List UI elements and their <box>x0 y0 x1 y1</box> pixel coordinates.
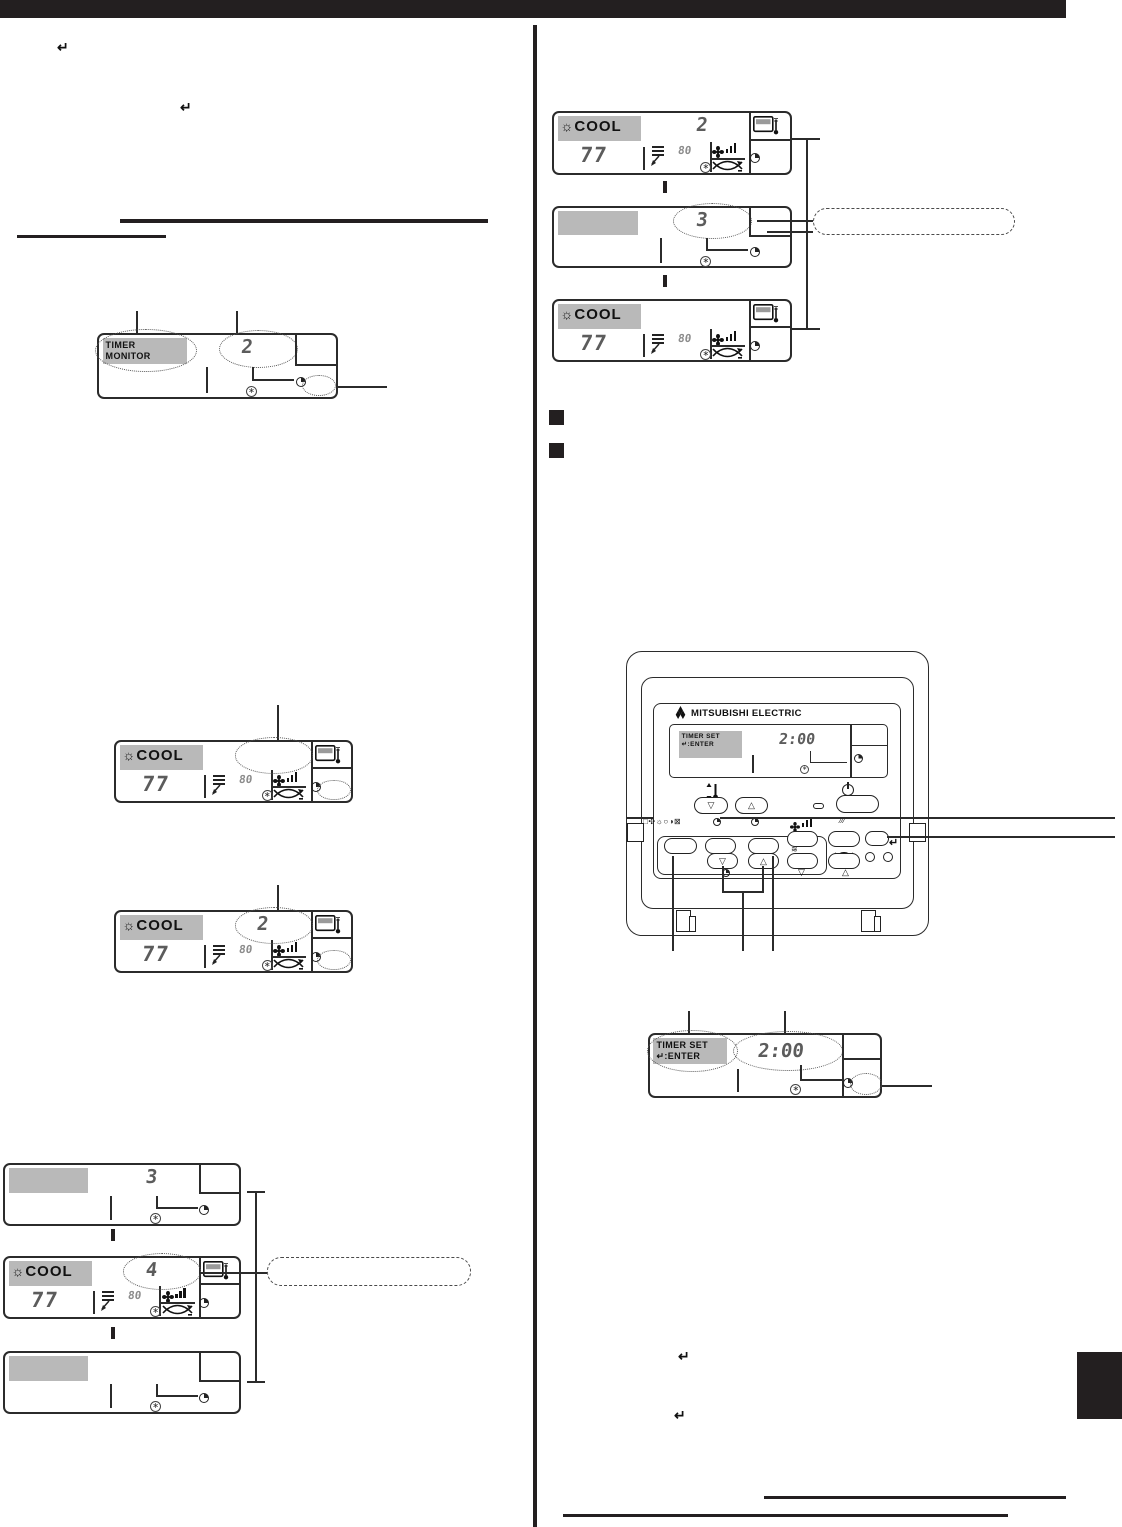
lcd-segment-line <box>156 1395 198 1397</box>
callout-line <box>887 836 1115 838</box>
lcd-segment-line <box>800 1079 843 1081</box>
lcd-segment-line <box>706 249 748 251</box>
mode-line1: TIMER SET <box>682 733 742 741</box>
lcd-timer-set: TIMER SET ↵:ENTER 2:00 ∗ <box>648 1033 882 1098</box>
bottom-clip-tab <box>689 916 696 932</box>
check-button <box>865 852 875 862</box>
swing-icon <box>161 1303 194 1321</box>
lcd-segment-line <box>199 1353 201 1381</box>
enter-key-icon: ↵ <box>674 1407 686 1424</box>
temperature-value: 77 <box>140 772 170 796</box>
page-header-bar <box>0 0 1066 18</box>
down-triangle-label: ▽ <box>719 856 726 866</box>
callout-line <box>277 705 279 740</box>
lcd-segment-line <box>643 147 645 170</box>
temperature-value: 77 <box>140 942 170 966</box>
timer-value: 3 <box>111 1166 191 1188</box>
highlight-ellipse <box>95 329 197 372</box>
callout-line <box>338 386 387 388</box>
bracket-line <box>255 1192 257 1383</box>
swing-icon <box>272 787 305 805</box>
manual-page: ↵ ↵ TIMER MONITOR 2 ∗ ☼COOL 77 80 ∗ <box>0 0 1122 1527</box>
callout-line <box>742 891 744 951</box>
swing-icon <box>711 346 744 364</box>
mode-indicator: ☼COOL <box>120 915 203 940</box>
lcd-segment-line <box>810 751 812 762</box>
sub-value: 80 <box>677 144 692 157</box>
callout-line <box>762 866 764 892</box>
lcd-sequence-cool-4: ☼COOL 77 80 ∗ 4 <box>3 1256 241 1319</box>
lcd-cool-running: ☼COOL 77 80 ∗ <box>552 299 792 362</box>
sub-value: 80 <box>677 332 692 345</box>
lcd-segment-line <box>199 1380 239 1382</box>
lcd-timer-monitor: TIMER MONITOR 2 ∗ <box>97 333 338 399</box>
cool-mode-icon: ☼ <box>561 306 574 322</box>
up-triangle-label: △ <box>748 800 755 810</box>
mode-label: COOL <box>574 306 621 323</box>
callout-line <box>672 856 674 951</box>
indoor-unit-icon <box>753 116 779 141</box>
side-clip <box>909 823 926 842</box>
lcd-segment-line <box>156 1207 198 1209</box>
timer-clock-icon <box>750 153 760 163</box>
asterisk-icon: ∗ <box>790 1084 801 1095</box>
cool-mode-icon: ☼ <box>123 917 136 933</box>
test-button <box>883 852 893 862</box>
heading-underline <box>17 235 166 238</box>
lcd-segment-line <box>204 775 206 798</box>
temperature-value: 77 <box>578 331 608 355</box>
on-off-button <box>836 795 879 813</box>
mode-indicator: ☼COOL <box>558 116 642 141</box>
mode-indicator-blank <box>9 1168 89 1193</box>
lcd-segment-line <box>810 762 847 764</box>
lcd-segment-line <box>252 379 294 381</box>
highlight-ellipse <box>317 950 351 970</box>
timer-time: 2:00 <box>757 1040 805 1062</box>
fan-speed-bars <box>724 140 736 158</box>
mode-indicator-blank <box>558 211 638 235</box>
callout-line <box>772 856 774 951</box>
asterisk-icon: ∗ <box>150 1401 161 1412</box>
lcd-segment-line <box>749 113 751 173</box>
mode-button <box>664 838 697 854</box>
lcd-segment-line <box>295 364 336 366</box>
mode-label: COOL <box>574 118 621 135</box>
highlight-ellipse <box>647 1030 739 1072</box>
louver-button <box>828 831 860 847</box>
sequence-tick <box>663 275 667 287</box>
lcd-segment-line <box>295 335 297 365</box>
highlight-ellipse <box>302 375 336 396</box>
lcd-segment-line <box>842 1035 844 1096</box>
timer-clock-icon <box>199 1298 209 1308</box>
lcd-segment-line <box>643 334 645 357</box>
timer-value: 2 <box>223 913 303 935</box>
lcd-cool-set: ☼COOL 77 80 ∗ 2 <box>114 910 353 973</box>
enter-key-icon: ↵ <box>889 836 898 849</box>
highlight-ellipse <box>850 1073 882 1095</box>
lcd-segment-line <box>199 1192 239 1194</box>
down-triangle-label: ▽ <box>798 867 805 878</box>
swing-icon <box>711 159 744 177</box>
fan-speed-icon <box>712 140 736 158</box>
callout-line <box>882 1085 932 1087</box>
timer-value: 2 <box>661 114 742 136</box>
mode-label: COOL <box>136 917 183 934</box>
lcd-segment-line <box>204 945 206 968</box>
lcd-sequence-blank-3: 3 ∗ <box>3 1163 241 1226</box>
sub-value: 80 <box>127 1289 142 1302</box>
mode-indicator: ☼COOL <box>558 304 642 329</box>
lcd-segment-line <box>842 1058 880 1060</box>
list-bullet <box>549 443 564 458</box>
highlight-ellipse <box>235 737 313 773</box>
column-divider <box>533 25 537 1527</box>
temperature-value: 77 <box>578 143 608 167</box>
callout-line <box>757 220 813 222</box>
cool-mode-icon: ☼ <box>561 118 574 134</box>
callout-line <box>720 817 1115 819</box>
clock-icon <box>751 818 759 826</box>
indoor-unit-icon <box>753 304 779 329</box>
fan-speed-icon <box>712 328 736 346</box>
sequence-tick <box>663 181 667 193</box>
clock-icon <box>713 818 721 826</box>
lcd-segment-line <box>752 755 754 774</box>
asterisk-icon: ∗ <box>800 765 809 774</box>
lcd-segment-line <box>749 301 751 360</box>
indoor-unit-icon <box>315 745 341 770</box>
asterisk-icon: ∗ <box>150 1213 161 1224</box>
mode-label: COOL <box>136 747 183 764</box>
lcd-segment-line <box>110 1384 112 1409</box>
timer-clock-icon <box>199 1205 209 1215</box>
lcd-segment-line <box>749 208 751 236</box>
lcd-segment-line <box>800 1065 802 1080</box>
mode-indicator: ☼COOL <box>120 745 203 770</box>
vane-direction-icon <box>96 1289 116 1319</box>
timer-clock-icon <box>750 247 760 257</box>
page-edge-tab <box>1077 1352 1122 1419</box>
lcd-segment-line <box>199 1165 201 1193</box>
enter-key-icon: ↵ <box>57 39 69 56</box>
timer-clock-icon <box>199 1393 209 1403</box>
asterisk-icon: ∗ <box>700 256 711 267</box>
vane-direction-icon <box>646 144 666 174</box>
brand-name: MITSUBISHI ELECTRIC <box>691 708 802 719</box>
sub-value: 80 <box>239 943 254 956</box>
bracket-line <box>792 138 820 140</box>
up-triangle-label: △ <box>760 856 767 866</box>
lcd-cool-pending: ☼COOL 77 80 ∗ <box>114 740 353 803</box>
mode-select-icons: □✣☼○◑⊠ <box>643 817 681 826</box>
bracket-line <box>792 328 820 330</box>
lcd-segment-line <box>749 235 790 237</box>
footnote-rule <box>563 1514 1008 1517</box>
timer-value: 2 <box>207 336 288 358</box>
cool-mode-icon: ☼ <box>123 747 136 763</box>
bracket-line <box>806 139 808 330</box>
timer-menu-button <box>705 838 736 854</box>
lcd-segment-line <box>850 745 887 747</box>
section-rule <box>120 219 488 223</box>
callout-line <box>236 311 238 333</box>
callout-line <box>722 866 724 892</box>
callout-capsule <box>267 1257 471 1286</box>
vane-direction-icon <box>207 773 227 803</box>
list-bullet <box>549 410 564 425</box>
lcd-sequence-blank-end: ∗ <box>3 1351 241 1414</box>
indoor-unit-icon <box>315 915 341 940</box>
timer-value: 3 <box>661 209 742 231</box>
indicator-lamp <box>813 803 824 809</box>
cool-mode-icon: ☼ <box>12 1263 25 1279</box>
mode-label: COOL <box>25 1263 72 1280</box>
bracket-line <box>247 1191 265 1193</box>
enter-key-icon: ↵ <box>180 99 192 116</box>
bottom-clip-tab <box>874 916 881 932</box>
lcd-cool-timer-2: ☼COOL 77 80 ∗ 2 <box>552 111 792 175</box>
lcd-segment-line <box>110 1196 112 1221</box>
timer-value: 4 <box>111 1259 191 1281</box>
callout-line <box>784 1011 786 1033</box>
lcd-segment-line <box>737 1069 739 1092</box>
callout-capsule <box>813 208 1015 235</box>
remote-lcd: TIMER SET ↵:ENTER 2:00 ∗ <box>669 724 888 778</box>
temp-up-button: △ <box>735 797 768 814</box>
timer-onoff-button <box>748 838 779 854</box>
asterisk-icon: ∗ <box>246 386 257 397</box>
mode-indicator: TIMER SET ↵:ENTER <box>679 731 742 758</box>
mode-indicator-blank <box>9 1356 89 1381</box>
sequence-tick <box>111 1327 115 1339</box>
lcd-segment-line <box>660 238 662 262</box>
lcd-blank-timer-3: 3 ∗ <box>552 206 792 268</box>
side-clip <box>627 823 644 842</box>
highlight-ellipse <box>317 780 351 800</box>
temp-down-button: ▽ <box>694 797 728 814</box>
enter-key-icon: ↵ <box>678 1348 690 1365</box>
timer-clock-icon <box>750 341 760 351</box>
lcd-segment-line <box>206 367 208 393</box>
sub-value: 80 <box>239 773 254 786</box>
up-triangle-label: △ <box>842 867 849 878</box>
temperature-value: 77 <box>29 1288 59 1312</box>
footnote-rule <box>764 1496 1066 1499</box>
swing-icon <box>272 957 305 975</box>
mode-indicator: ☼COOL <box>9 1261 92 1286</box>
timer-clock-icon <box>854 754 863 763</box>
vane-direction-icon <box>207 943 227 973</box>
down-triangle-label: ▽ <box>708 800 715 810</box>
lcd-segment-line <box>850 725 852 777</box>
timer-time: 2:00 <box>777 730 815 748</box>
vane-direction-icon <box>646 332 666 362</box>
mode-line2: ↵:ENTER <box>682 741 742 749</box>
bracket-line <box>247 1381 265 1383</box>
mitsubishi-logo-icon <box>673 706 688 724</box>
sequence-tick <box>111 1229 115 1241</box>
lcd-segment-line <box>93 1291 95 1314</box>
enter-button <box>865 831 889 846</box>
fan-speed-bars <box>724 328 736 346</box>
